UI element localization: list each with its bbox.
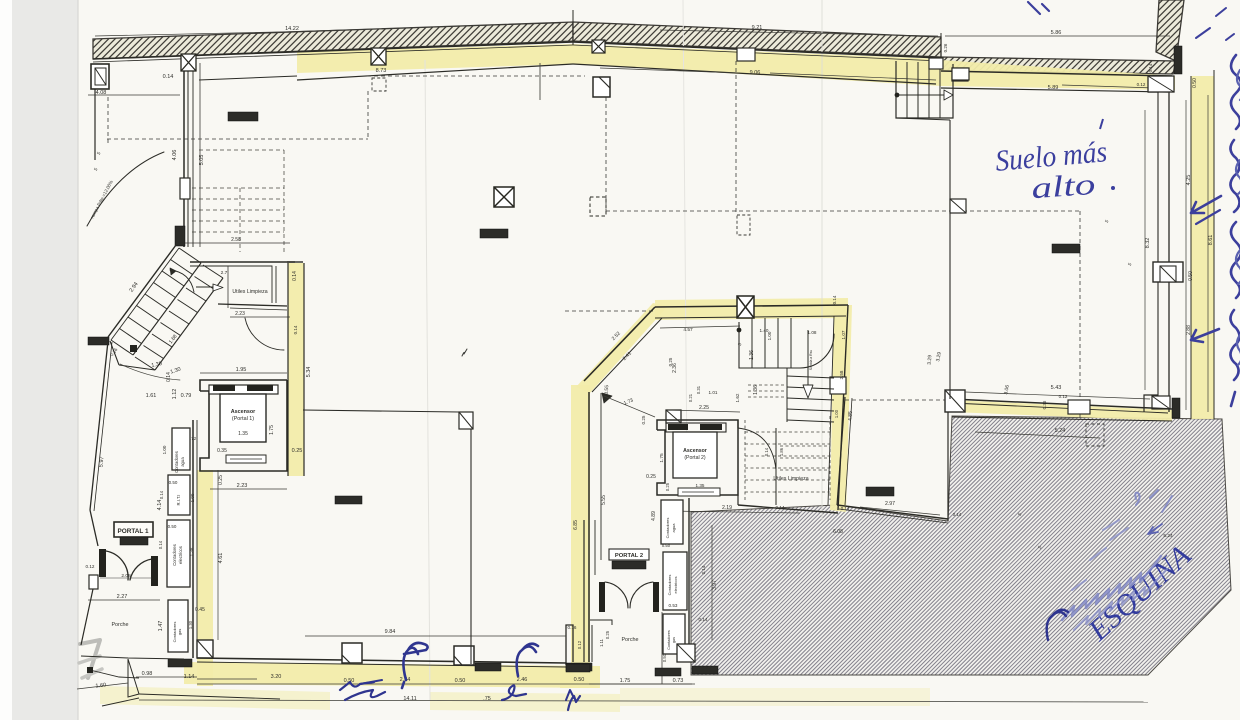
svg-text:1.08: 1.08 xyxy=(808,330,817,335)
svg-text:0.73: 0.73 xyxy=(673,678,684,684)
svg-text:9.84: 9.84 xyxy=(385,629,396,635)
svg-text:0.12: 0.12 xyxy=(1059,394,1068,399)
svg-text:Porche: Porche xyxy=(621,637,638,643)
svg-text:Porche: Porche xyxy=(111,622,128,628)
svg-text:(Portal 2): (Portal 2) xyxy=(684,455,706,461)
svg-text:2.88: 2.88 xyxy=(1186,325,1192,335)
svg-text:0.25: 0.25 xyxy=(605,630,610,639)
svg-text:agua: agua xyxy=(671,523,676,533)
svg-text:1.11: 1.11 xyxy=(599,638,604,647)
svg-text:0.25: 0.25 xyxy=(292,448,303,454)
svg-text:4.08: 4.08 xyxy=(96,90,107,96)
svg-text:0.50: 0.50 xyxy=(662,543,671,548)
svg-text:9.06: 9.06 xyxy=(750,70,761,76)
svg-text:1.75: 1.75 xyxy=(269,425,275,435)
svg-text:1.60: 1.60 xyxy=(95,682,106,689)
svg-text:2.19: 2.19 xyxy=(722,505,732,511)
svg-text:(Portal 1): (Portal 1) xyxy=(232,416,254,422)
svg-text:0.14: 0.14 xyxy=(292,271,298,281)
svg-text:2.27: 2.27 xyxy=(117,594,128,600)
svg-text:6.85: 6.85 xyxy=(573,520,579,530)
svg-text:0.25: 0.25 xyxy=(641,415,646,424)
svg-text:0.25: 0.25 xyxy=(218,475,224,485)
svg-text:Subida a Rsu: Subida a Rsu xyxy=(809,350,813,370)
svg-text:6.08: 6.08 xyxy=(833,529,843,535)
svg-text:5.97: 5.97 xyxy=(99,456,106,467)
svg-text:4.61: 4.61 xyxy=(218,553,224,564)
svg-text:2.23: 2.23 xyxy=(237,483,248,489)
svg-text:0.50: 0.50 xyxy=(455,678,466,684)
svg-text:4.14: 4.14 xyxy=(157,500,163,511)
svg-text:gas: gas xyxy=(177,629,182,635)
svg-text:0.31: 0.31 xyxy=(696,385,701,394)
svg-text:3.29: 3.29 xyxy=(927,355,934,365)
svg-text:1.00: 1.00 xyxy=(834,409,839,418)
svg-text:8.61: 8.61 xyxy=(1208,235,1214,246)
svg-text:4.57: 4.57 xyxy=(683,327,693,333)
svg-text:5.34: 5.34 xyxy=(306,367,312,378)
svg-text:Contadores: Contadores xyxy=(667,630,671,650)
svg-text:0.14: 0.14 xyxy=(158,540,163,549)
svg-text:0.14: 0.14 xyxy=(166,372,172,382)
svg-text:electricos: electricos xyxy=(178,546,183,564)
svg-text:agua: agua xyxy=(180,457,185,467)
svg-text:5.05: 5.05 xyxy=(199,155,205,166)
svg-text:Contadores: Contadores xyxy=(665,518,670,539)
svg-text:2.25: 2.25 xyxy=(699,405,709,411)
svg-text:PORTAL 1: PORTAL 1 xyxy=(117,528,148,535)
svg-text:0.25: 0.25 xyxy=(668,357,673,366)
svg-text:0.12: 0.12 xyxy=(577,640,582,649)
svg-text:gas: gas xyxy=(672,637,676,643)
svg-text:2.97: 2.97 xyxy=(885,501,895,507)
svg-text:5.43: 5.43 xyxy=(1051,385,1062,391)
svg-text:1.35: 1.35 xyxy=(696,483,705,488)
svg-text:0.14: 0.14 xyxy=(293,325,298,334)
svg-text:5.24: 5.24 xyxy=(1055,428,1066,434)
svg-text:0.50: 0.50 xyxy=(574,677,585,683)
svg-text:5.24: 5.24 xyxy=(1163,533,1173,539)
svg-text:1.00: 1.00 xyxy=(162,445,167,454)
svg-text:.75: .75 xyxy=(483,696,491,702)
svg-text:4.25: 4.25 xyxy=(1186,175,1192,186)
svg-text:1.14: 1.14 xyxy=(184,674,195,680)
svg-text:0.50: 0.50 xyxy=(1188,271,1194,281)
svg-text:14.11: 14.11 xyxy=(403,696,416,702)
svg-text:2.58: 2.58 xyxy=(839,370,844,379)
svg-text:0.14: 0.14 xyxy=(764,447,769,456)
svg-text:5.55: 5.55 xyxy=(601,495,607,505)
svg-text:0.14: 0.14 xyxy=(953,512,962,517)
svg-text:PORTAL 2: PORTAL 2 xyxy=(615,553,643,559)
svg-text:electricos: electricos xyxy=(673,577,678,594)
svg-text:0.25: 0.25 xyxy=(646,474,656,480)
svg-text:14.22: 14.22 xyxy=(285,26,299,32)
svg-text:1.61: 1.61 xyxy=(146,393,157,399)
svg-text:Contadores: Contadores xyxy=(172,544,177,566)
svg-text:0.14: 0.14 xyxy=(701,565,706,574)
svg-text:0.14: 0.14 xyxy=(832,295,837,304)
svg-text:8.73: 8.73 xyxy=(376,68,387,74)
svg-text:1.75: 1.75 xyxy=(659,453,665,463)
svg-text:0.25: 0.25 xyxy=(665,482,670,491)
svg-text:0.21: 0.21 xyxy=(688,393,693,402)
svg-text:4.89: 4.89 xyxy=(651,511,657,521)
svg-text:0.14: 0.14 xyxy=(841,506,850,511)
svg-text:0.50: 0.50 xyxy=(662,653,667,662)
svg-text:Contadores: Contadores xyxy=(174,451,179,473)
svg-text:0.79: 0.79 xyxy=(181,393,192,399)
svg-text:1.62: 1.62 xyxy=(735,393,740,402)
svg-text:0.98: 0.98 xyxy=(142,671,153,677)
svg-text:0.45: 0.45 xyxy=(195,607,205,613)
svg-text:alto: alto xyxy=(1030,168,1096,205)
svg-text:3.20: 3.20 xyxy=(271,674,282,680)
svg-text:Ascensor: Ascensor xyxy=(683,448,707,454)
svg-text:1.00: 1.00 xyxy=(767,331,772,340)
svg-text:0.36: 0.36 xyxy=(1042,400,1047,409)
svg-text:0.50: 0.50 xyxy=(168,524,177,529)
svg-text:4.06: 4.06 xyxy=(172,150,178,161)
svg-text:0.16: 0.16 xyxy=(568,625,577,630)
svg-text:2.08: 2.08 xyxy=(121,573,131,579)
svg-text:1.36: 1.36 xyxy=(753,385,759,395)
svg-text:0.14: 0.14 xyxy=(699,617,708,622)
svg-text:8.32: 8.32 xyxy=(1145,238,1151,249)
svg-text:1.86: 1.86 xyxy=(779,447,784,456)
svg-text:0.12: 0.12 xyxy=(1137,82,1146,87)
svg-text:1.12: 1.12 xyxy=(172,389,178,400)
svg-text:0.14: 0.14 xyxy=(163,74,174,80)
svg-text:0.12: 0.12 xyxy=(86,564,95,569)
svg-text:1.47: 1.47 xyxy=(158,621,164,632)
svg-text:1.75: 1.75 xyxy=(620,678,631,684)
svg-text:0.50: 0.50 xyxy=(1192,78,1198,88)
svg-text:1.07: 1.07 xyxy=(841,330,846,339)
svg-text:Ascensor: Ascensor xyxy=(231,409,256,415)
svg-text:2.58: 2.58 xyxy=(231,237,241,243)
svg-text:R.I.T.I: R.I.T.I xyxy=(176,495,181,506)
svg-text:2.7: 2.7 xyxy=(221,270,228,276)
svg-text:Contadores: Contadores xyxy=(667,575,672,596)
svg-text:3.55: 3.55 xyxy=(604,385,611,395)
svg-text:0.26: 0.26 xyxy=(943,43,948,52)
svg-text:Utiles Limpieza: Utiles Limpieza xyxy=(773,476,808,482)
svg-text:0.50: 0.50 xyxy=(169,480,178,485)
svg-text:0.53: 0.53 xyxy=(669,603,678,608)
svg-text:2.46: 2.46 xyxy=(517,677,528,683)
svg-text:1.95: 1.95 xyxy=(236,367,247,373)
svg-text:5.89: 5.89 xyxy=(1048,85,1059,91)
svg-text:0.35: 0.35 xyxy=(217,448,227,454)
svg-text:1.35: 1.35 xyxy=(238,431,248,437)
svg-text:9.21: 9.21 xyxy=(752,25,763,31)
svg-text:1.01: 1.01 xyxy=(709,390,718,395)
svg-text:0.14: 0.14 xyxy=(159,490,164,499)
svg-text:2.23: 2.23 xyxy=(235,311,245,317)
svg-text:3.97: 3.97 xyxy=(712,580,718,590)
svg-text:0.14: 0.14 xyxy=(1148,63,1153,72)
svg-text:Utiles Limpieza: Utiles Limpieza xyxy=(232,289,267,295)
svg-text:5.86: 5.86 xyxy=(1051,30,1062,36)
